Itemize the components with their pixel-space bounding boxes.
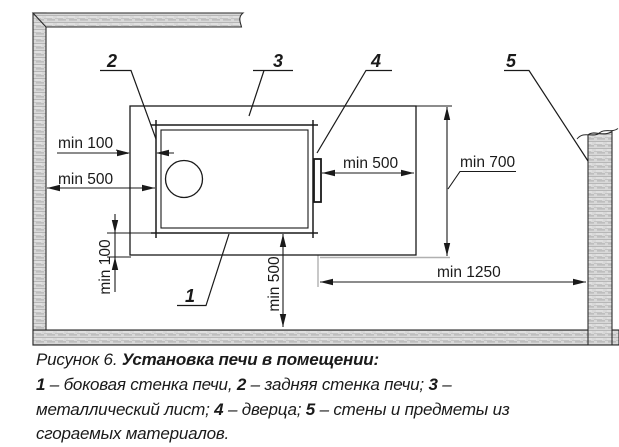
figure-title: Установка печи в помещении: (122, 350, 379, 369)
stove-door (314, 159, 321, 202)
dim-back-gap-label: min 100 (58, 135, 114, 152)
legend-item-desc: – задняя стенка печи; (251, 375, 424, 394)
dim-side-clearance-label: min 500 (266, 256, 283, 312)
callout-5-combustible-wall: 5 (506, 51, 517, 71)
dim-sheet-depth-label: min 700 (460, 154, 516, 171)
arrowhead (112, 220, 118, 233)
arrowhead (444, 107, 450, 120)
arrowhead (117, 150, 130, 156)
callout-2-rear-wall: 2 (106, 51, 117, 71)
callout-4-door: 4 (370, 51, 381, 71)
dim-front-clearance-label: min 500 (343, 155, 399, 172)
arrowhead (444, 243, 450, 256)
dim-side-gap-label: min 100 (97, 239, 114, 295)
arrowhead (573, 279, 586, 285)
right-wall (588, 132, 612, 346)
legend-item-num: 2 (237, 375, 246, 394)
arrowhead (320, 279, 333, 285)
callout-1-side-wall: 1 (185, 286, 195, 306)
dim-back-clearance-label: min 500 (58, 171, 114, 188)
legend-item-num: 3 (429, 375, 438, 394)
dim-sheet-depth-leader (448, 172, 516, 190)
installation-diagram: min 100 min 500 min 500 min 700 min 1250… (0, 0, 619, 348)
figure-page: min 100 min 500 min 500 min 700 min 1250… (0, 0, 619, 436)
legend-item-num: 5 (306, 400, 315, 419)
stove-burner-circle (166, 161, 203, 198)
legend-item-desc: – боковая стенка печи, (50, 375, 233, 394)
callout-3-metal-sheet: 3 (273, 51, 283, 71)
left-wall (33, 13, 46, 345)
legend-item-desc: – дверца; (228, 400, 301, 419)
figure-label: Рисунок 6. (36, 350, 117, 369)
caption-title-line: Рисунок 6. Установка печи в помещении: (36, 350, 564, 370)
figure-caption: Рисунок 6. Установка печи в помещении: 1… (36, 350, 564, 447)
legend-item-num: 1 (36, 375, 45, 394)
callout-5-leader (504, 71, 588, 162)
top-wall (33, 13, 243, 27)
bottom-wall (33, 330, 619, 345)
legend-item-num: 4 (214, 400, 223, 419)
arrowhead (280, 314, 286, 327)
dim-front-wall-clearance-label: min 1250 (437, 264, 501, 281)
